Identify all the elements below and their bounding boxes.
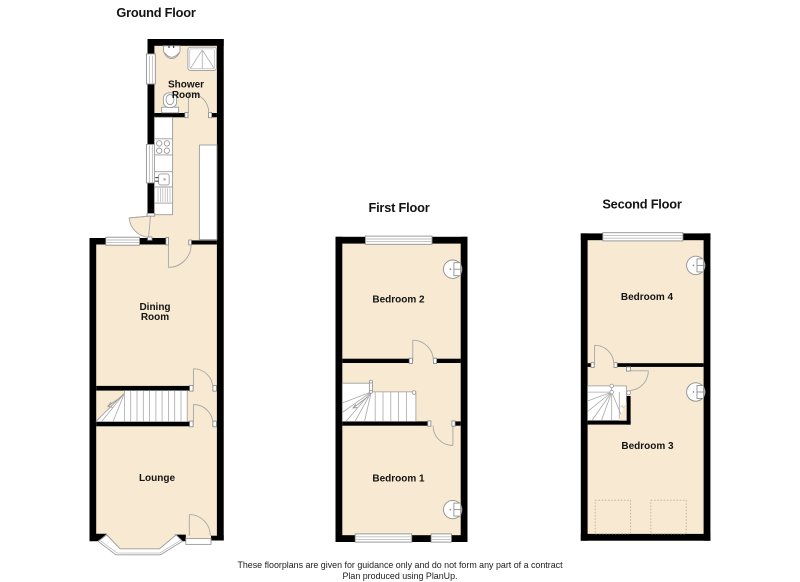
svg-text:Ground Floor: Ground Floor — [116, 5, 196, 20]
svg-text:Room: Room — [172, 90, 200, 101]
svg-text:Second Floor: Second Floor — [602, 197, 682, 212]
svg-text:Bedroom 2: Bedroom 2 — [372, 295, 425, 306]
svg-text:Bedroom 1: Bedroom 1 — [372, 474, 425, 485]
svg-text:Plan produced using PlanUp.: Plan produced using PlanUp. — [343, 571, 458, 581]
svg-text:Bedroom 3: Bedroom 3 — [621, 441, 674, 452]
svg-text:Shower: Shower — [168, 80, 204, 91]
svg-text:First Floor: First Floor — [368, 200, 429, 215]
svg-text:Lounge: Lounge — [139, 473, 176, 484]
svg-text:Bedroom 4: Bedroom 4 — [621, 292, 674, 303]
svg-text:Room: Room — [141, 312, 169, 323]
svg-text:These floorplans are given for: These floorplans are given for guidance … — [237, 560, 563, 570]
